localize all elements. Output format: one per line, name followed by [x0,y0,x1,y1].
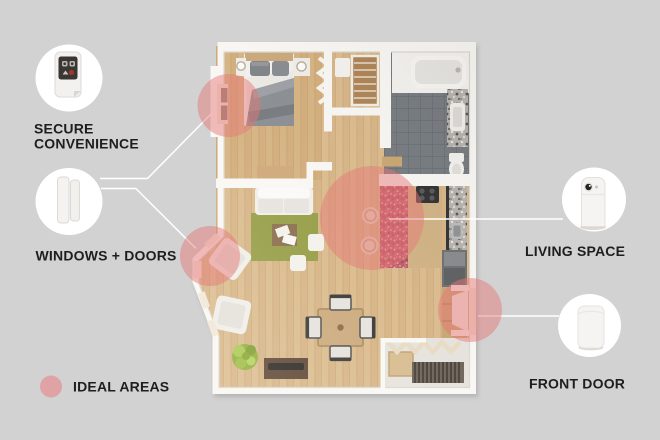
svg-text:WINDOWS + DOORS: WINDOWS + DOORS [36,248,177,264]
svg-text:LIVING SPACE: LIVING SPACE [525,243,625,259]
svg-text:SECURE: SECURE [34,121,94,137]
svg-text:IDEAL AREAS: IDEAL AREAS [73,379,169,395]
svg-text:FRONT DOOR: FRONT DOOR [529,376,625,392]
svg-text:CONVENIENCE: CONVENIENCE [34,136,139,152]
